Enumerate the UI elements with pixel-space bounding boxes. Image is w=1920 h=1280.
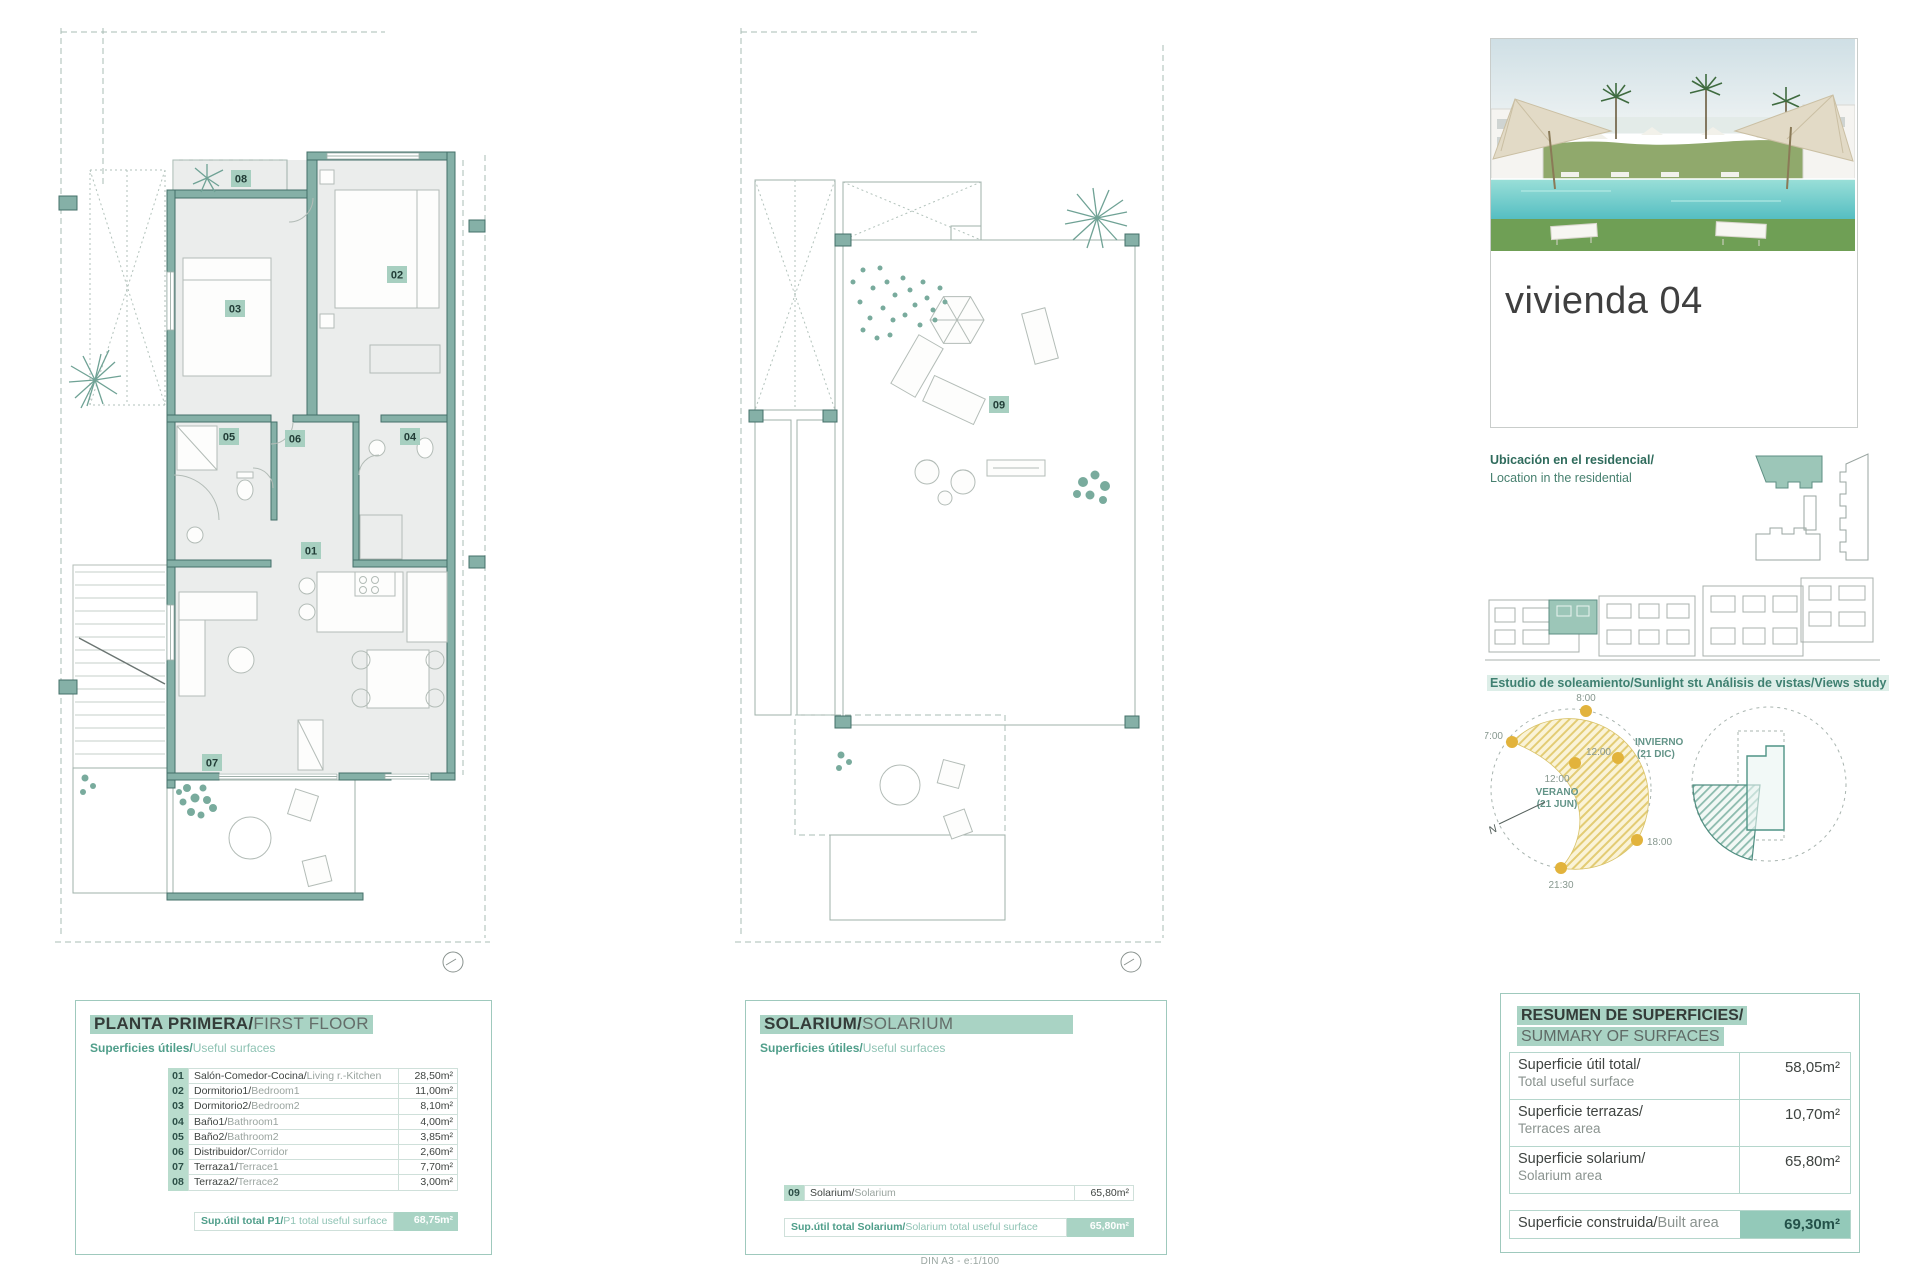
views-study-diagram bbox=[1685, 692, 1880, 922]
plan-sheet: 01 02 03 04 05 06 07 08 bbox=[0, 0, 1920, 1280]
summary-row: Superficie solarium/Solarium area 65,80m… bbox=[1510, 1146, 1850, 1193]
summary-table: Superficie útil total/Total useful surfa… bbox=[1509, 1052, 1851, 1194]
location-label: Ubicación en el residencial/ Location in… bbox=[1490, 452, 1654, 487]
panel-title: PLANTA PRIMERA/FIRST FLOOR bbox=[90, 1014, 491, 1034]
table-row: 02Dormitorio1/Bedroom111,00m² bbox=[168, 1083, 458, 1099]
views-study-label: Análisis de vistas/Views study bbox=[1703, 676, 1889, 690]
total-row: Sup.útil total P1/P1 total useful surfac… bbox=[194, 1212, 458, 1231]
table-row: 03Dormitorio2/Bedroom28,10m² bbox=[168, 1098, 458, 1114]
table-row: 06Distribuidor/Corridor2,60m² bbox=[168, 1144, 458, 1160]
panel-title: SOLARIUM/SOLARIUM bbox=[760, 1014, 1166, 1034]
svg-text:09: 09 bbox=[993, 400, 1005, 412]
svg-text:04: 04 bbox=[404, 432, 417, 444]
furniture bbox=[880, 297, 1058, 839]
svg-text:01: 01 bbox=[305, 546, 317, 558]
svg-text:N: N bbox=[1487, 823, 1499, 837]
solarium-tiles bbox=[843, 240, 1135, 725]
summary-title: RESUMEN DE SUPERFICIES/ SUMMARY OF SURFA… bbox=[1501, 994, 1859, 1046]
solarium-info-box: SOLARIUM/SOLARIUM Superficies útiles/Use… bbox=[745, 1000, 1167, 1255]
summary-value: 10,70m² bbox=[1739, 1100, 1850, 1146]
panel-title-en: FIRST FLOOR bbox=[253, 1014, 368, 1033]
plant-dots bbox=[80, 775, 217, 819]
table-row: 08Terraza2/Terrace23,00m² bbox=[168, 1174, 458, 1190]
svg-text:08: 08 bbox=[235, 174, 247, 186]
svg-text:(21 DIC): (21 DIC) bbox=[1637, 749, 1675, 760]
built-area-row: Superficie construida/Built area 69,30m² bbox=[1509, 1210, 1851, 1239]
solarium-plan: 09 bbox=[735, 20, 1170, 955]
sun-path-band bbox=[1512, 719, 1649, 870]
total-value: 68,75m² bbox=[394, 1212, 458, 1231]
summary-row: Superficie terrazas/Terraces area 10,70m… bbox=[1510, 1099, 1850, 1146]
residential-location-diagram bbox=[1748, 448, 1876, 566]
first-floor-plan: 01 02 03 04 05 06 07 08 bbox=[55, 20, 490, 955]
lower-terrace-tiles bbox=[795, 715, 1005, 835]
svg-text:05: 05 bbox=[223, 432, 235, 444]
svg-text:(21 JUN): (21 JUN) bbox=[1537, 799, 1578, 810]
table-row: 05Baño2/Bathroom23,85m² bbox=[168, 1129, 458, 1145]
north-compass-icon bbox=[1118, 949, 1144, 975]
svg-text:INVIERNO: INVIERNO bbox=[1635, 737, 1684, 748]
first-floor-info-box: PLANTA PRIMERA/FIRST FLOOR Superficies ú… bbox=[75, 1000, 492, 1255]
table-row: 04Baño1/Bathroom14,00m² bbox=[168, 1114, 458, 1130]
summary-value: 58,05m² bbox=[1739, 1053, 1850, 1099]
svg-text:18:00: 18:00 bbox=[1647, 837, 1672, 848]
summary-row: Superficie útil total/Total useful surfa… bbox=[1510, 1053, 1850, 1099]
stairwell bbox=[73, 565, 167, 893]
unit-card: vivienda 04 bbox=[1490, 38, 1858, 428]
elevation-strip-diagram bbox=[1485, 572, 1880, 667]
room-badges: 09 bbox=[989, 396, 1009, 413]
svg-text:12:00: 12:00 bbox=[1586, 747, 1611, 758]
pool-render-photo bbox=[1491, 39, 1855, 251]
svg-text:02: 02 bbox=[391, 270, 403, 282]
highlighted-unit bbox=[1549, 600, 1597, 634]
unit-title: vivienda 04 bbox=[1505, 280, 1857, 323]
svg-text:8:00: 8:00 bbox=[1576, 693, 1596, 704]
roof-voids bbox=[755, 180, 981, 410]
svg-text:03: 03 bbox=[229, 304, 241, 316]
summary-box: RESUMEN DE SUPERFICIES/ SUMMARY OF SURFA… bbox=[1500, 993, 1860, 1253]
summary-value: 65,80m² bbox=[1739, 1147, 1850, 1193]
svg-text:12:00: 12:00 bbox=[1544, 774, 1569, 785]
sunlight-study-diagram: 8:00 7:00 12:00 VERANO (21 JUN) 12:00 IN… bbox=[1485, 692, 1700, 922]
courtyard-void bbox=[90, 170, 165, 405]
panel-subtitle: Superficies útiles/Useful surfaces bbox=[90, 1041, 491, 1055]
svg-text:21:30: 21:30 bbox=[1548, 880, 1573, 891]
built-area-value: 69,30m² bbox=[1740, 1211, 1850, 1238]
palm bbox=[1065, 188, 1127, 248]
surfaces-table: 09Solarium/Solarium65,80m² bbox=[784, 1186, 1134, 1201]
panel-subtitle: Superficies útiles/Useful surfaces bbox=[760, 1041, 1166, 1055]
plant-dots bbox=[836, 266, 1110, 772]
surfaces-table: 01Salón-Comedor-Cocina/Living r.-Kitchen… bbox=[168, 1069, 458, 1191]
scale-note: DIN A3 - e:1/100 bbox=[860, 1256, 1060, 1267]
svg-text:06: 06 bbox=[289, 434, 301, 446]
svg-text:07: 07 bbox=[206, 758, 218, 770]
svg-text:VERANO: VERANO bbox=[1536, 787, 1579, 798]
table-row: 01Salón-Comedor-Cocina/Living r.-Kitchen… bbox=[168, 1068, 458, 1084]
total-value: 65,80m² bbox=[1067, 1218, 1134, 1237]
table-row: 07Terraza1/Terrace17,70m² bbox=[168, 1159, 458, 1175]
north-compass-icon bbox=[440, 949, 466, 975]
panel-title-es: PLANTA PRIMERA/ bbox=[94, 1014, 253, 1033]
unit-footprint bbox=[1747, 746, 1784, 830]
svg-text:7:00: 7:00 bbox=[1485, 731, 1503, 742]
table-row: 09Solarium/Solarium65,80m² bbox=[784, 1185, 1134, 1201]
total-row: Sup.útil total Solarium/Solarium total u… bbox=[784, 1218, 1134, 1237]
sunlight-study-label: Estudio de soleamiento/Sunlight study bbox=[1487, 676, 1724, 690]
